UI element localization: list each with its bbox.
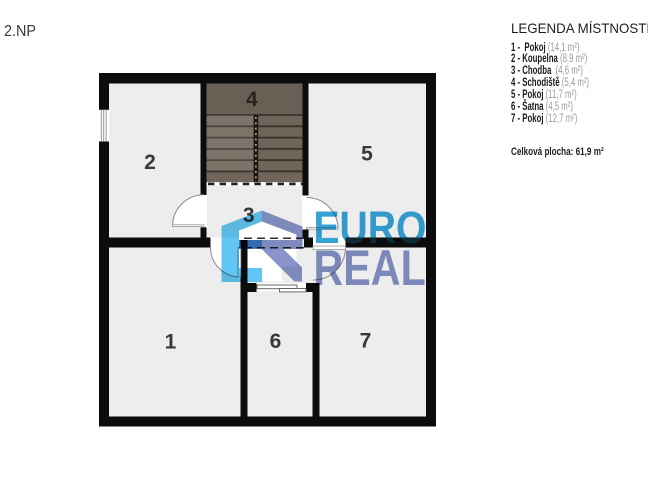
svg-text:1: 1 [165,331,177,354]
svg-text:6: 6 [270,330,282,353]
svg-text:2: 2 [144,151,156,174]
svg-text:REAL: REAL [314,240,426,296]
svg-text:4: 4 [246,88,258,111]
svg-text:5: 5 [361,143,373,166]
svg-text:7: 7 [360,330,372,353]
